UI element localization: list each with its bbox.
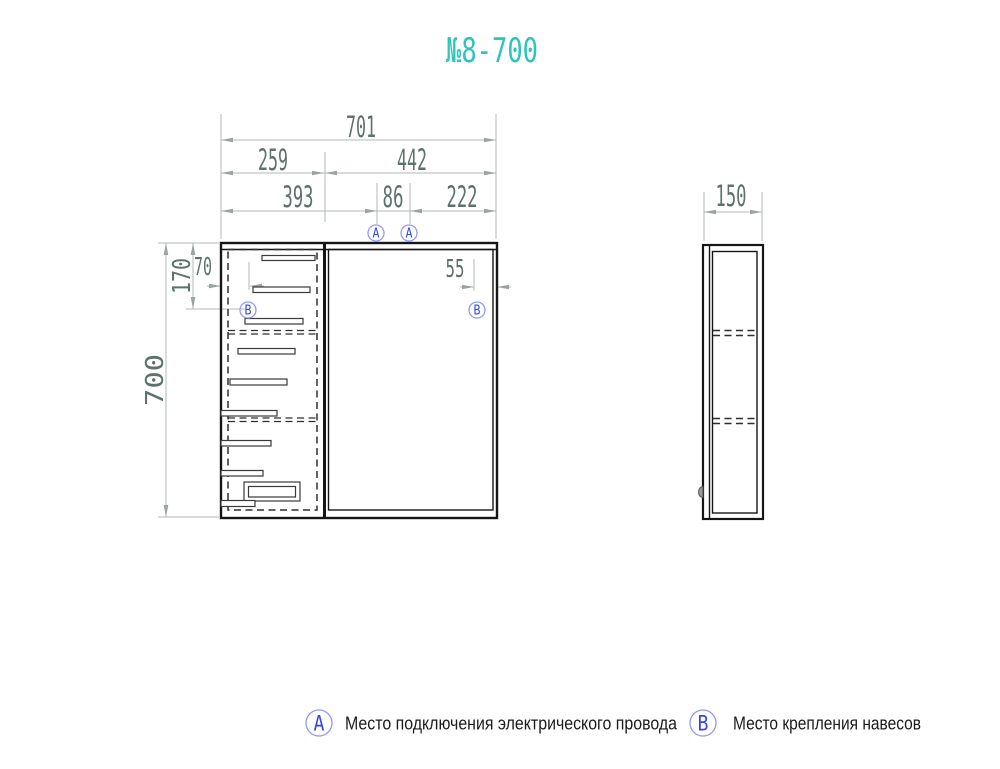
right-hinge-dimension	[460, 259, 511, 291]
dim-hinge-inset-right: 55	[446, 254, 465, 283]
dim-outlet-span: 86	[383, 180, 404, 214]
side-inner-box	[713, 252, 758, 514]
dim-total-width: 701	[346, 110, 376, 144]
legend: A Место подключения электрического прово…	[306, 710, 921, 736]
outlet-markers: A A	[368, 225, 417, 242]
technical-drawing: №8-700 701 259 442 393 86 222 A A	[0, 0, 1000, 769]
page-title: №8-700	[446, 31, 538, 71]
marker-b-letter-left: B	[245, 304, 252, 319]
side-view	[699, 245, 764, 519]
dim-depth: 150	[716, 179, 747, 213]
shelf-slats	[221, 256, 315, 507]
dim-open-section-width: 259	[258, 143, 288, 177]
mirror-door-panel	[329, 250, 494, 511]
legend-b-symbol: B	[698, 712, 709, 736]
dim-hinge-inset-left: 70	[194, 252, 212, 281]
drawer-box-inner	[249, 487, 296, 498]
dim-outlet-left-offset: 393	[283, 180, 314, 214]
dim-door-width: 442	[397, 143, 427, 177]
legend-a-symbol: A	[314, 712, 325, 736]
legend-b-label: Место крепления навесов	[733, 714, 921, 734]
drawing-canvas: №8-700 701 259 442 393 86 222 A A	[0, 0, 1000, 769]
dim-total-height: 700	[140, 354, 169, 406]
marker-b-letter-right: B	[474, 304, 481, 319]
door-knob-profile	[699, 487, 704, 498]
legend-a-label: Место подключения электрического провода	[345, 714, 678, 734]
marker-a-letter-2: A	[406, 227, 413, 242]
front-view: B B	[221, 243, 497, 518]
dim-hinge-top-offset: 170	[167, 258, 196, 294]
marker-a-letter-1: A	[373, 227, 380, 242]
side-shelves-dashed	[713, 331, 755, 424]
dim-outlet-right-offset: 222	[447, 180, 478, 214]
